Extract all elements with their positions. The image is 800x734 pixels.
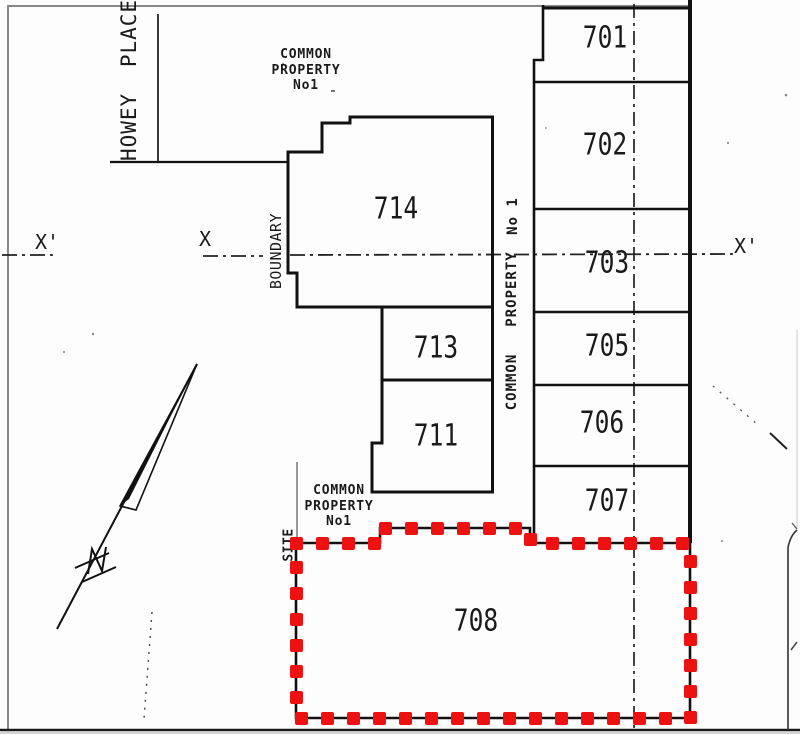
common-property-strip-property: PROPERTY — [504, 251, 520, 326]
highlight-dash — [451, 712, 464, 725]
section-marker-x: X — [199, 227, 211, 251]
highlight-dash — [405, 522, 418, 535]
highlight-dash — [529, 712, 542, 725]
common-property-strip-no1: No 1 — [505, 197, 521, 235]
highlight-dash — [684, 685, 697, 698]
highlight-dash — [684, 607, 697, 620]
common-property-lower-line2: PROPERTY — [304, 498, 373, 514]
highlight-dash — [624, 537, 637, 550]
north-arrow-icon — [57, 364, 197, 629]
common-property-label-top: COMMON PROPERTY No1 — [271, 47, 340, 94]
street-label-howey-place: HOWEY PLACE — [117, 0, 141, 161]
highlight-dash — [290, 561, 303, 574]
common-property-strip-common: COMMON — [504, 354, 520, 411]
section-marker-x-prime-right: X' — [734, 234, 758, 258]
highlight-dash — [483, 522, 496, 535]
highlight-dash — [546, 537, 559, 550]
highlight-dash — [290, 639, 303, 652]
highlight-dash — [684, 711, 697, 724]
highlight-dash — [509, 522, 522, 535]
highlight-dash — [290, 587, 303, 600]
highlight-dash — [342, 537, 355, 550]
highlight-dash — [650, 537, 663, 550]
highlight-dash — [431, 522, 444, 535]
highlight-dash — [290, 691, 303, 704]
highlight-dash — [379, 522, 392, 535]
building-outline — [288, 117, 493, 492]
highlight-dash — [477, 712, 490, 725]
highlight-dash — [633, 712, 646, 725]
highlight-dash — [347, 712, 360, 725]
lot-701-label: 701 — [583, 21, 627, 56]
highlight-dash — [676, 537, 689, 550]
highlight-dash — [373, 712, 386, 725]
highlight-dash — [684, 633, 697, 646]
highlight-dash — [368, 537, 381, 550]
highlight-dash — [290, 613, 303, 626]
highlight-dash — [316, 537, 329, 550]
lot-708-label: 708 — [454, 604, 498, 639]
highlight-dash — [503, 712, 516, 725]
lot-706-label: 706 — [580, 406, 624, 441]
lot-703-label: 703 — [585, 246, 629, 281]
highlight-dash — [572, 537, 585, 550]
highlight-dash — [321, 712, 334, 725]
highlight-dash — [684, 581, 697, 594]
highlight-dash — [581, 712, 594, 725]
lots-column-left-edge — [534, 5, 543, 543]
section-marker-x-prime-left: X' — [35, 230, 59, 254]
lot-702-label: 702 — [583, 128, 627, 163]
highlight-dash — [290, 665, 303, 678]
highlight-dash — [659, 712, 672, 725]
lot-707-label: 707 — [585, 484, 629, 519]
common-property-top-line2: PROPERTY — [271, 62, 340, 78]
highlight-dash — [295, 712, 308, 725]
highlight-dash — [555, 712, 568, 725]
common-property-lower-line3: No1 — [304, 514, 373, 530]
common-property-top-line3: No1 — [271, 78, 340, 94]
highlight-dash — [290, 537, 303, 550]
highlight-dash — [425, 712, 438, 725]
highlight-dash — [524, 533, 537, 546]
highlight-dash — [598, 537, 611, 550]
highlight-dash — [684, 555, 697, 568]
lot-705-label: 705 — [585, 329, 629, 364]
lot-714-label: 714 — [374, 192, 418, 227]
lot-711-label: 711 — [414, 419, 458, 454]
highlight-dash — [457, 522, 470, 535]
highlight-dash — [399, 712, 412, 725]
common-property-top-line1: COMMON — [271, 47, 340, 63]
common-property-label-lower: COMMON PROPERTY No1 — [304, 483, 373, 530]
highlight-dash — [607, 712, 620, 725]
lot-713-label: 713 — [414, 331, 458, 366]
common-property-lower-line1: COMMON — [304, 483, 373, 499]
strata-plan-map: HOWEY PLACE COMMON PROPERTY No1 X' X X' … — [0, 0, 800, 734]
highlight-dash — [684, 659, 697, 672]
boundary-label: BOUNDARY — [267, 213, 285, 289]
